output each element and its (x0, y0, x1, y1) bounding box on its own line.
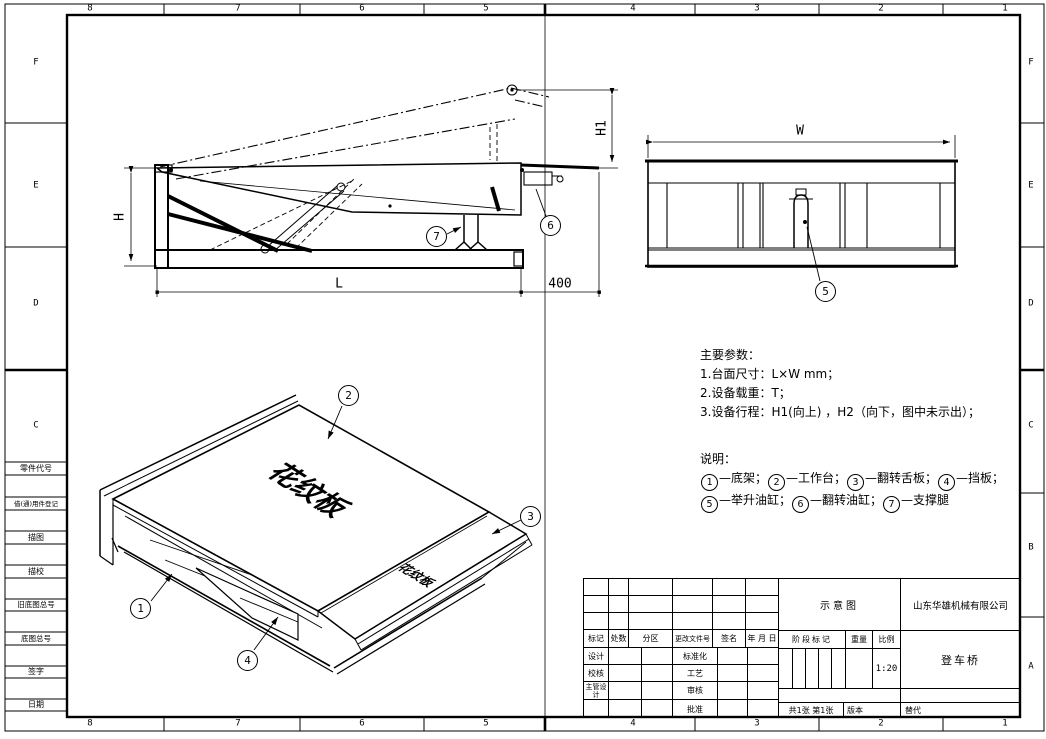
replace-label: 替代 (901, 703, 1020, 718)
parameter-line: 3.设备行程：H1(向上) ，H2（向下，图中未示出）； (700, 403, 980, 422)
zone-number: 3 (754, 5, 759, 14)
role-label: 主管设计 (584, 682, 609, 700)
zone-number: 2 (878, 5, 883, 14)
margin-label: 底图总号 (5, 633, 67, 645)
zone-number: 5 (483, 720, 488, 729)
legend-item-number: 3 (847, 474, 864, 491)
legend-item-number: 1 (701, 474, 718, 491)
zone-number: 8 (87, 5, 92, 14)
legend-notes: 说明： 1—底架；2—工作台；3—翻转舌板；4—挡板； 5—举升油缸；6—翻转油… (700, 450, 1004, 513)
front-view (645, 135, 958, 281)
main-parameters: 主要参数： 1.台面尺寸：L×W mm； 2.设备载重：T； 3.设备行程：H1… (700, 346, 980, 422)
zone-letter: E (33, 182, 38, 191)
zone-number: 2 (878, 720, 883, 729)
callout-platform: 2 (338, 385, 359, 406)
company-name: 山东华雄机械有限公司 (901, 579, 1020, 631)
margin-label: 签字 (5, 666, 67, 678)
scale-value: 1:20 (873, 649, 901, 689)
zone-number: 4 (630, 720, 635, 729)
zone-number: 3 (754, 720, 759, 729)
parameters-title: 主要参数： (700, 346, 980, 365)
margin-label: 描校 (5, 566, 67, 578)
legend-item-label: —翻转油缸； (810, 493, 882, 507)
stage-mark-cell (832, 649, 846, 689)
role-label: 审核 (673, 682, 718, 700)
role-label: 设计 (584, 648, 609, 665)
dim-label-height: H (114, 212, 127, 222)
callout-side-plate: 4 (237, 650, 258, 671)
role-label: 标准化 (673, 648, 718, 665)
zone-number: 6 (359, 720, 364, 729)
stage-mark-label: 阶段标记 (779, 631, 846, 649)
zone-letter: D (1028, 300, 1033, 309)
legend-item-number: 2 (768, 474, 785, 491)
callout-base-frame: 1 (130, 598, 151, 619)
legend-item-number: 7 (883, 496, 900, 513)
legend-item-label: —翻转舌板； (865, 471, 937, 485)
product-name: 登车桥 (901, 631, 1020, 689)
rev-header: 年 月 日 (746, 630, 779, 648)
notes-line-1: 1—底架；2—工作台；3—翻转舌板；4—挡板； (700, 469, 1004, 491)
stage-mark-cell (819, 649, 832, 689)
weight-label: 重量 (846, 631, 873, 649)
rev-header: 签名 (713, 630, 746, 648)
dim-label-rear-400: 400 (547, 278, 572, 291)
stage-mark-cell (793, 649, 806, 689)
legend-item-label: —支撑腿 (901, 493, 949, 507)
legend-item-label: —工作台； (786, 471, 846, 485)
rev-header: 分区 (629, 630, 673, 648)
zone-number: 7 (235, 720, 240, 729)
side-view (124, 85, 618, 297)
isometric-view (100, 395, 532, 674)
notes-title: 说明： (700, 450, 1004, 469)
sheet-info: 共1张 第1张 (779, 703, 844, 718)
callout-support-leg: 7 (426, 226, 447, 247)
role-label: 批准 (673, 700, 718, 718)
dim-label-length: L (334, 278, 344, 291)
zone-number: 8 (87, 720, 92, 729)
rev-header: 更改文件号 (673, 630, 713, 648)
margin-label: 日期 (5, 699, 67, 711)
zone-letter: D (33, 300, 38, 309)
notes-line-2: 5—举升油缸；6—翻转油缸；7—支撑腿 (700, 491, 1004, 513)
version-label: 版本 (844, 703, 901, 718)
callout-lip: 3 (520, 506, 541, 527)
stage-mark-cell (779, 649, 793, 689)
zone-letter: E (1028, 182, 1033, 191)
margin-label: 借(通)用件登记 (5, 498, 67, 510)
zone-letter: F (33, 59, 38, 68)
zone-letter: A (1028, 663, 1033, 672)
scale-label: 比例 (873, 631, 901, 649)
zone-letter: B (1028, 544, 1033, 553)
callout-lift-cylinder: 5 (815, 281, 836, 302)
parameter-line: 2.设备载重：T； (700, 384, 980, 403)
dim-label-lift: H1 (596, 119, 609, 137)
zone-number: 5 (483, 5, 488, 14)
dim-label-width: W (795, 125, 805, 138)
legend-item-label: —举升油缸； (719, 493, 791, 507)
rev-header: 标记 (584, 630, 609, 648)
zone-letter: C (33, 422, 38, 431)
role-label: 校核 (584, 665, 609, 682)
doc-type: 示意图 (779, 579, 901, 631)
rev-header: 处数 (609, 630, 629, 648)
zone-letter: F (1028, 59, 1033, 68)
legend-item-number: 5 (701, 496, 718, 513)
zone-number: 1 (1002, 5, 1007, 14)
role-label: 工艺 (673, 665, 718, 682)
margin-label: 零件代号 (5, 463, 67, 475)
callout-flip-cylinder: 6 (540, 215, 561, 236)
legend-item-number: 4 (938, 474, 955, 491)
margin-label: 描图 (5, 532, 67, 544)
zone-number: 4 (630, 5, 635, 14)
stage-mark-cell (806, 649, 819, 689)
title-block: 标记 处数 分区 更改文件号 签名 年 月 日 设计 标准化 校核 工艺 主管设… (583, 578, 1020, 717)
margin-label: 旧底图总号 (5, 599, 67, 611)
weight-value (846, 649, 873, 689)
zone-number: 6 (359, 5, 364, 14)
parameter-line: 1.台面尺寸：L×W mm； (700, 365, 980, 384)
legend-item-number: 6 (792, 496, 809, 513)
legend-item-label: —底架； (719, 471, 767, 485)
zone-number: 1 (1002, 720, 1007, 729)
zone-number: 7 (235, 5, 240, 14)
engineering-drawing-page: 8 7 6 5 4 3 2 1 8 7 6 5 4 3 2 1 F E D C … (0, 0, 1046, 739)
legend-item-label: —挡板； (956, 471, 1004, 485)
zone-letter: C (1028, 422, 1033, 431)
